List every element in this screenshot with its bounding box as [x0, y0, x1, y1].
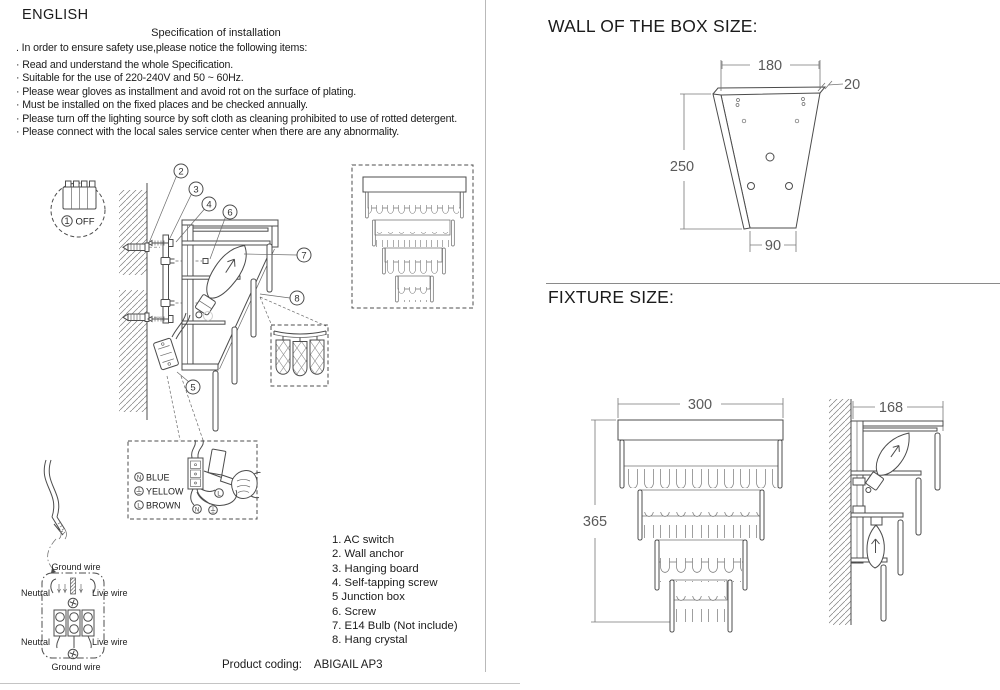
- dim-height-value: 250: [670, 159, 694, 175]
- switch-number: 1: [64, 216, 69, 227]
- supply-wires: [44, 460, 66, 573]
- wall-box-outline: [713, 87, 825, 229]
- dim-top-value: 180: [758, 58, 782, 74]
- wall-box-diagram: 180 20 250 90: [600, 45, 960, 270]
- section-divider: [546, 283, 1000, 284]
- language-header: ENGLISH: [22, 7, 88, 23]
- callouts: 2 3 4 6 7 8 5: [149, 164, 326, 440]
- live-wire-label: Live wire: [92, 588, 128, 598]
- notice-line: . In order to ensure safety use,please n…: [16, 42, 486, 55]
- callout-6: 6: [227, 207, 232, 218]
- wall-anchor: [123, 313, 160, 322]
- notice-line: · Please turn off the lighting source by…: [16, 113, 486, 126]
- tapping-screw: [148, 316, 173, 323]
- hand-icon: [232, 471, 258, 499]
- wall-box-heading: WALL OF THE BOX SIZE:: [548, 16, 758, 37]
- dimension-300: 300: [618, 397, 783, 418]
- ground-wire-label: Ground wire: [51, 662, 100, 672]
- callout-4: 4: [206, 199, 211, 210]
- legend-brown: BROWN: [146, 501, 181, 511]
- earth-icon: [137, 488, 142, 496]
- dimension-180: 180: [721, 58, 820, 91]
- fixture-size-diagram: 300 365: [545, 385, 1000, 645]
- dim-height-value: 365: [583, 514, 607, 530]
- notice-line: · Suitable for the use of 220-240V and 5…: [16, 72, 486, 85]
- neutral-label: Neutral: [21, 588, 50, 598]
- callout-3: 3: [193, 184, 198, 195]
- hang-crystal-detail: [271, 325, 328, 386]
- dimension-20: 20: [818, 77, 860, 93]
- callout-8: 8: [294, 293, 299, 304]
- ground-wire-label: Ground wire: [51, 562, 100, 572]
- fixture-front-view: 300 365: [583, 397, 783, 632]
- e14-bulb-lower: [867, 517, 884, 568]
- callout-2: 2: [178, 166, 183, 177]
- fixture-heading: FIXTURE SIZE:: [548, 287, 674, 308]
- legend-blue: BLUE: [146, 473, 170, 483]
- legend-yellow: YELLOW: [146, 487, 184, 497]
- fixture-side-view: 168: [829, 399, 943, 625]
- terminal-block: Ground wire Neutral Live wire Neutral Li…: [21, 562, 128, 672]
- ac-switch-icon: 1 OFF: [51, 181, 105, 237]
- notice-line: · Must be installed on the fixed places …: [16, 99, 486, 112]
- e14-bulb: [187, 238, 255, 324]
- callout-7: 7: [301, 250, 306, 261]
- earth-icon: [211, 507, 215, 514]
- switch-off-label: OFF: [76, 217, 95, 228]
- dimension-90: 90: [750, 231, 796, 254]
- wall-anchor: [123, 243, 160, 252]
- wiring-detail: N BLUE YELLOW L BROWN L N: [128, 440, 261, 519]
- legend-letter-n: N: [137, 476, 141, 482]
- e14-bulb-upper: [858, 426, 918, 498]
- wall-section: [119, 183, 147, 420]
- notice-line: · Please connect with the local sales se…: [16, 126, 486, 139]
- safety-notices: . In order to ensure safety use,please n…: [16, 42, 486, 139]
- manual-page: ENGLISH Specification of installation . …: [0, 0, 1000, 690]
- fixture-frame: [182, 220, 278, 370]
- dim-depth-value: 20: [844, 77, 860, 93]
- dim-depth-value: 168: [879, 400, 903, 416]
- terminal-letter-n: N: [195, 508, 199, 514]
- notice-line: · Read and understand the whole Specific…: [16, 59, 486, 72]
- live-wire-label: Live wire: [92, 637, 128, 647]
- fixture-front-inset: [352, 165, 473, 308]
- notice-line: · Please wear gloves as installment and …: [16, 86, 486, 99]
- neutral-label: Neutral: [21, 637, 50, 647]
- tapping-screw: [148, 240, 173, 247]
- spec-title: Specification of installation: [0, 27, 432, 39]
- dim-width-value: 300: [688, 397, 712, 413]
- dim-bottom-value: 90: [765, 238, 781, 254]
- installation-diagram: 1 OFF: [0, 140, 500, 690]
- callout-5: 5: [190, 382, 195, 393]
